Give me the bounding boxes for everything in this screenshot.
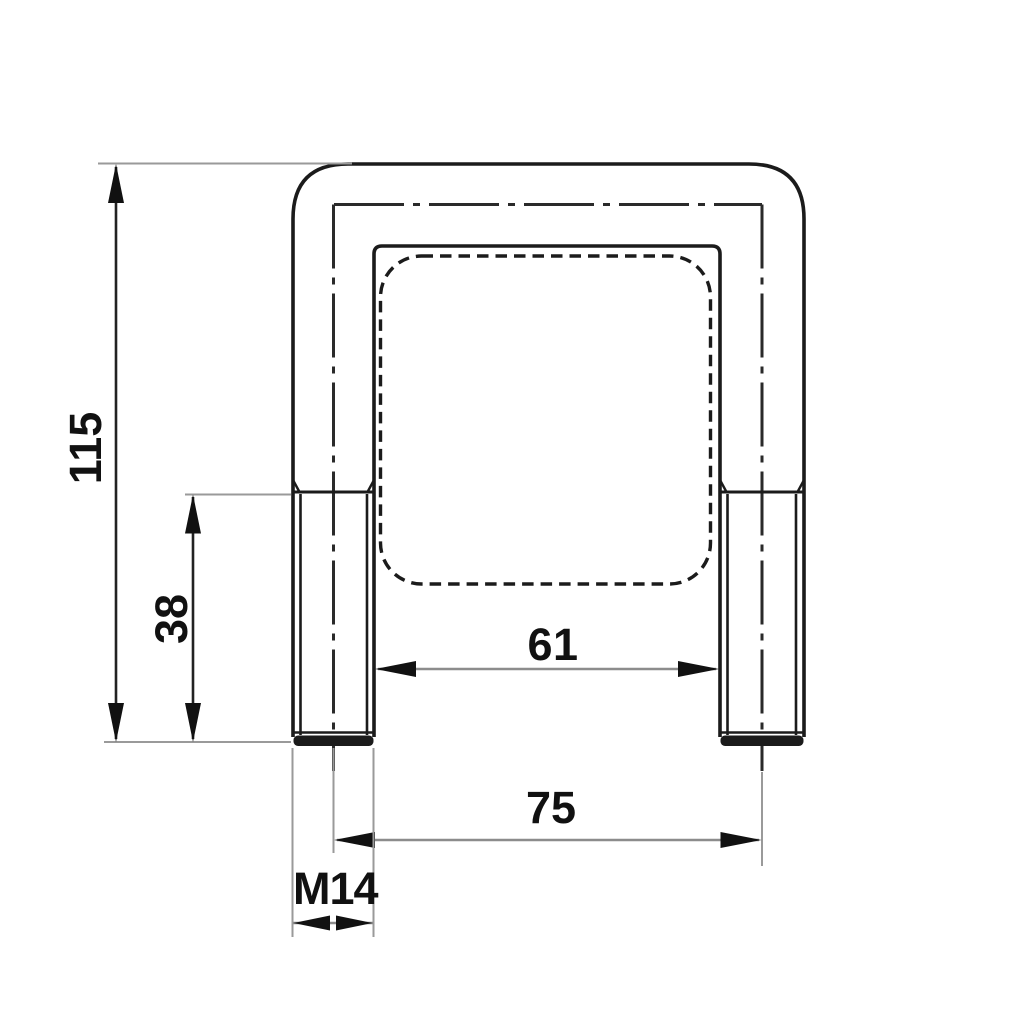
svg-text:75: 75	[526, 782, 576, 833]
svg-text:38: 38	[146, 594, 197, 644]
svg-text:115: 115	[60, 412, 111, 485]
svg-text:61: 61	[527, 619, 578, 670]
svg-text:M14: M14	[293, 863, 379, 914]
